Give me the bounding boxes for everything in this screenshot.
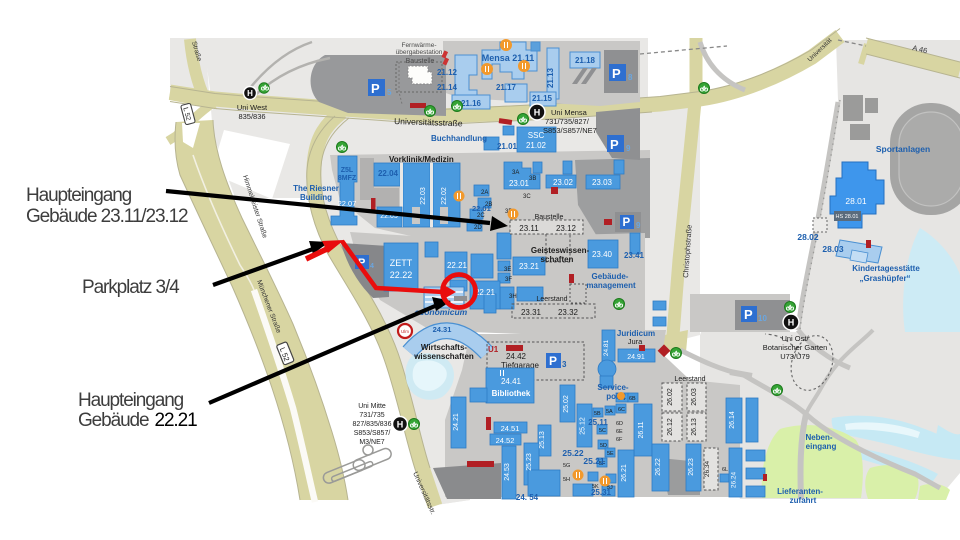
svg-text:24.53: 24.53	[504, 463, 511, 481]
svg-text:schaften: schaften	[541, 255, 574, 264]
svg-text:M3/NE7: M3/NE7	[359, 439, 384, 446]
svg-text:9: 9	[626, 144, 631, 153]
svg-text:H: H	[397, 420, 404, 430]
svg-text:23.32: 23.32	[558, 308, 579, 317]
svg-text:5C: 5C	[599, 428, 606, 434]
svg-text:Z5L: Z5L	[341, 167, 354, 174]
svg-text:5E: 5E	[607, 451, 614, 457]
svg-text:2C: 2C	[477, 213, 485, 219]
svg-text:25.23: 25.23	[526, 453, 533, 471]
svg-text:Gebäude22.21: Gebäude22.21	[78, 410, 197, 431]
svg-text:26.14: 26.14	[729, 411, 736, 429]
svg-text:22.21: 22.21	[475, 288, 496, 297]
svg-text:3E: 3E	[504, 267, 511, 273]
svg-text:827/835/836: 827/835/836	[353, 421, 392, 428]
svg-text:Sportanlagen: Sportanlagen	[876, 144, 930, 154]
svg-text:5H: 5H	[563, 477, 570, 483]
svg-text:23.01: 23.01	[509, 179, 530, 188]
svg-text:Leerstand: Leerstand	[674, 376, 705, 383]
svg-text:10: 10	[758, 314, 767, 323]
svg-text:Lieferanten-: Lieferanten-	[777, 487, 823, 496]
svg-text:Uni Ost/: Uni Ost/	[781, 334, 809, 343]
svg-text:5: 5	[387, 88, 392, 97]
svg-text:28.02: 28.02	[797, 232, 819, 242]
svg-text:22.01: 22.01	[472, 204, 491, 213]
svg-text:25.13: 25.13	[539, 431, 546, 449]
svg-text:übergabestation: übergabestation	[396, 49, 443, 56]
svg-text:25.31: 25.31	[591, 488, 612, 497]
svg-text:H: H	[788, 318, 795, 328]
svg-text:U73/U79: U73/U79	[780, 352, 810, 361]
svg-text:5G: 5G	[563, 463, 570, 469]
svg-text:Jura: Jura	[628, 337, 643, 346]
svg-text:23.03: 23.03	[592, 178, 613, 187]
svg-text:zufahrt: zufahrt	[790, 496, 817, 505]
svg-text:24.21: 24.21	[453, 413, 460, 431]
svg-text:Botanischer Garten: Botanischer Garten	[763, 343, 828, 352]
svg-text:21.13: 21.13	[546, 67, 555, 88]
svg-text:U1: U1	[488, 345, 499, 354]
svg-text:Bibliothek: Bibliothek	[492, 389, 531, 398]
svg-text:P: P	[612, 66, 621, 81]
svg-text:22.22: 22.22	[390, 270, 413, 280]
svg-text:The Riesner: The Riesner	[293, 184, 339, 193]
svg-text:P: P	[549, 354, 557, 368]
svg-text:25.02: 25.02	[563, 395, 570, 413]
svg-text:Uni Mensa: Uni Mensa	[551, 108, 588, 117]
svg-text:23.02: 23.02	[553, 178, 574, 187]
svg-text:21.16: 21.16	[461, 99, 482, 108]
svg-text:P: P	[610, 137, 619, 152]
svg-text:21.12: 21.12	[437, 68, 458, 77]
svg-text:2D: 2D	[474, 225, 482, 231]
svg-text:24.81: 24.81	[603, 339, 610, 356]
svg-text:22.03: 22.03	[420, 187, 427, 205]
svg-text:6B: 6B	[629, 396, 636, 402]
svg-text:731/735: 731/735	[359, 412, 384, 419]
svg-text:23.31: 23.31	[521, 308, 542, 317]
svg-text:2A: 2A	[481, 190, 488, 196]
svg-text:3H: 3H	[509, 294, 517, 300]
svg-text:26.03: 26.03	[691, 388, 698, 406]
svg-text:P: P	[371, 81, 380, 96]
svg-text:6F: 6F	[616, 437, 623, 443]
svg-text:Ulm: Ulm	[401, 329, 409, 334]
svg-text:6L: 6L	[722, 467, 728, 473]
svg-text:25.21: 25.21	[583, 456, 605, 466]
svg-text:26.11: 26.11	[638, 421, 645, 438]
svg-text:8MFZ: 8MFZ	[338, 175, 357, 182]
svg-text:SSC: SSC	[528, 131, 545, 140]
svg-text:Uni Mitte: Uni Mitte	[358, 403, 386, 410]
svg-text:731/735/827/: 731/735/827/	[545, 117, 590, 126]
svg-text:eingang: eingang	[806, 442, 837, 451]
svg-text:Haupteingang: Haupteingang	[26, 185, 132, 206]
svg-text:S853/S857/: S853/S857/	[354, 430, 391, 437]
svg-text:21.14: 21.14	[437, 83, 458, 92]
svg-text:Parkplatz 3/4: Parkplatz 3/4	[82, 277, 180, 298]
svg-text:H: H	[534, 108, 541, 118]
svg-text:26.02: 26.02	[667, 388, 674, 406]
svg-text:5A: 5A	[606, 409, 613, 415]
svg-text:Service-: Service-	[597, 383, 628, 392]
svg-text:S853/S857/NE7: S853/S857/NE7	[543, 126, 597, 135]
svg-text:24.52: 24.52	[496, 436, 515, 445]
svg-text:25.12: 25.12	[580, 417, 587, 435]
svg-text:25.22: 25.22	[562, 448, 584, 458]
svg-text:Wirtschafts-: Wirtschafts-	[421, 343, 467, 352]
svg-text:3B: 3B	[529, 176, 536, 182]
svg-text:wissenschaften: wissenschaften	[413, 352, 474, 361]
svg-text:21.18: 21.18	[575, 56, 596, 65]
svg-text:Leerstand: Leerstand	[536, 296, 567, 303]
svg-text:26.22: 26.22	[655, 458, 662, 476]
svg-text:3F: 3F	[505, 277, 512, 283]
svg-text:23.40: 23.40	[592, 250, 613, 259]
svg-text:24.41: 24.41	[501, 377, 522, 386]
svg-text:Uni West: Uni West	[237, 103, 268, 112]
svg-text:Gebäude 23.11/23.12: Gebäude 23.11/23.12	[26, 206, 188, 227]
svg-text:Buchhandlung: Buchhandlung	[431, 134, 487, 143]
svg-text:3: 3	[562, 360, 567, 369]
svg-text:5B: 5B	[594, 411, 601, 417]
svg-text:ZETT: ZETT	[390, 258, 413, 268]
svg-text:21.02: 21.02	[526, 141, 547, 150]
svg-text:management: management	[586, 281, 636, 290]
svg-text:835/836: 835/836	[238, 112, 265, 121]
svg-text:21.17: 21.17	[496, 83, 517, 92]
svg-text:26.34: 26.34	[704, 460, 711, 477]
svg-text:Haupteingang: Haupteingang	[78, 390, 184, 411]
svg-text:3A: 3A	[512, 170, 519, 176]
svg-text:26.12: 26.12	[667, 418, 674, 436]
svg-text:24.51: 24.51	[501, 424, 520, 433]
svg-text:26.23: 26.23	[688, 458, 695, 476]
svg-text:6D: 6D	[616, 421, 623, 427]
svg-text:24.91: 24.91	[627, 354, 645, 361]
svg-text:26.21: 26.21	[621, 464, 628, 482]
svg-text:8: 8	[628, 73, 633, 82]
svg-text:5D: 5D	[600, 443, 607, 449]
svg-text:28.01: 28.01	[845, 196, 867, 206]
svg-text:26.24: 26.24	[731, 471, 738, 488]
svg-text:28.03: 28.03	[822, 244, 844, 254]
svg-text:22.21: 22.21	[447, 261, 468, 270]
svg-text:P: P	[744, 307, 753, 322]
svg-text:H: H	[247, 89, 253, 98]
svg-text:23.41: 23.41	[624, 251, 645, 260]
svg-text:23.21: 23.21	[519, 262, 540, 271]
svg-text:HS 28.01: HS 28.01	[836, 214, 859, 220]
svg-text:Neben-: Neben-	[805, 433, 832, 442]
svg-text:Building: Building	[300, 193, 332, 202]
svg-text:3C: 3C	[523, 194, 531, 200]
svg-text:Kindertagesstätte: Kindertagesstätte	[852, 264, 920, 273]
svg-text:25.11: 25.11	[588, 418, 608, 427]
svg-text:26.13: 26.13	[691, 418, 698, 436]
svg-text:„Grashüpfer“: „Grashüpfer“	[859, 274, 910, 283]
svg-text:21.15: 21.15	[532, 94, 553, 103]
svg-text:24.42: 24.42	[506, 352, 527, 361]
svg-text:Gebäude-: Gebäude-	[592, 272, 629, 281]
svg-text:24. 54: 24. 54	[516, 493, 539, 502]
svg-text:Fernwärme-: Fernwärme-	[401, 42, 436, 49]
svg-text:Geisteswissen-: Geisteswissen-	[531, 246, 590, 255]
svg-text:24.31: 24.31	[433, 325, 452, 334]
svg-text:23.12: 23.12	[556, 224, 577, 233]
svg-text:21.01: 21.01	[497, 142, 518, 151]
svg-text:22.04: 22.04	[378, 169, 399, 178]
svg-text:4: 4	[370, 263, 374, 270]
svg-text:6E: 6E	[616, 429, 623, 435]
svg-text:6C: 6C	[618, 407, 625, 413]
svg-text:23.11: 23.11	[519, 224, 539, 233]
svg-text:P: P	[623, 217, 631, 229]
svg-text:22.02: 22.02	[441, 187, 448, 205]
